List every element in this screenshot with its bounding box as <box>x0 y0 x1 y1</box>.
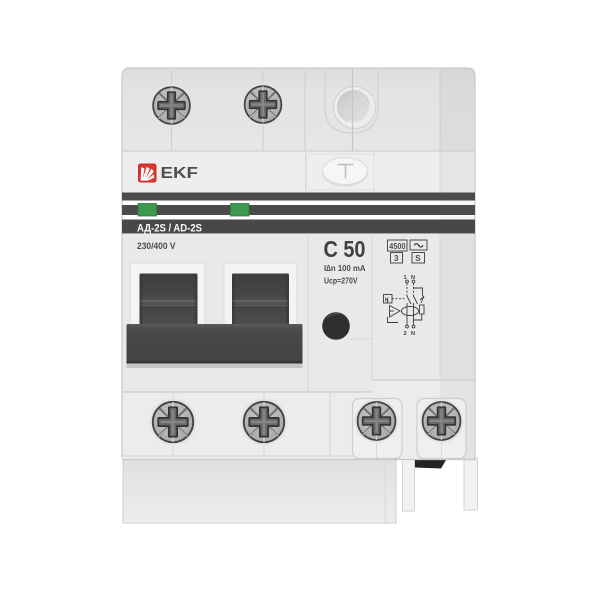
svg-text:K: K <box>385 298 389 304</box>
svg-text:Ucp=270V: Ucp=270V <box>324 276 358 286</box>
svg-text:2: 2 <box>404 331 407 337</box>
svg-text:S: S <box>415 254 421 263</box>
svg-text:EKF: EKF <box>161 165 199 182</box>
svg-text:I∆n 100 mA: I∆n 100 mA <box>324 263 366 273</box>
svg-text:N: N <box>411 275 415 281</box>
svg-text:4500: 4500 <box>389 242 406 251</box>
svg-text:3: 3 <box>394 254 399 263</box>
svg-text:230/400 V: 230/400 V <box>137 241 176 251</box>
svg-text:1: 1 <box>404 275 407 281</box>
svg-text:C 50: C 50 <box>324 236 366 262</box>
svg-text:N: N <box>411 331 415 337</box>
svg-text:АД-2S / AD-2S: АД-2S / AD-2S <box>137 223 202 235</box>
